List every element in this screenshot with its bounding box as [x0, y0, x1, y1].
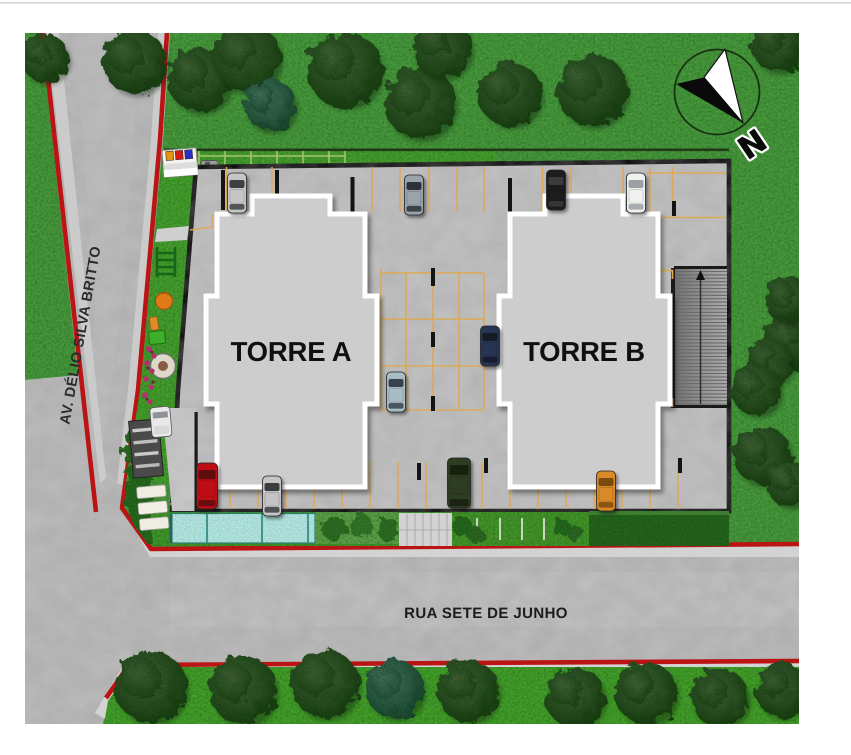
svg-text:TORRE A: TORRE A	[231, 336, 352, 367]
svg-text:TORRE B: TORRE B	[523, 336, 645, 367]
svg-text:RUA SETE DE JUNHO: RUA SETE DE JUNHO	[404, 605, 568, 622]
